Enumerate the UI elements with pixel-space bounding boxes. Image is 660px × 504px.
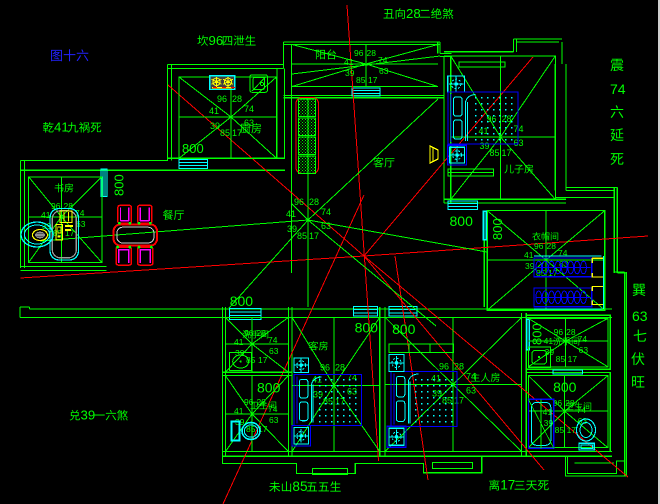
svg-text:39: 39 [525, 261, 535, 271]
svg-text:85: 85 [490, 148, 500, 158]
svg-text:85: 85 [556, 354, 566, 364]
svg-text:28: 28 [406, 6, 421, 21]
svg-text:96: 96 [354, 48, 364, 58]
svg-text:28: 28 [566, 327, 576, 337]
svg-text:96: 96 [534, 241, 544, 251]
svg-text:41: 41 [544, 336, 554, 346]
svg-text:800: 800 [392, 321, 416, 337]
svg-text:96: 96 [294, 197, 304, 207]
svg-text:800: 800 [257, 380, 281, 396]
svg-text:63: 63 [76, 219, 86, 229]
svg-text:63: 63 [269, 415, 279, 425]
svg-text:96: 96 [439, 362, 449, 372]
svg-text:800: 800 [450, 213, 474, 229]
svg-text:800: 800 [182, 141, 204, 156]
svg-text:85: 85 [246, 355, 256, 365]
svg-text:41: 41 [41, 210, 51, 220]
svg-text:85: 85 [220, 128, 230, 138]
svg-text:85: 85 [292, 479, 307, 494]
svg-text:41: 41 [54, 120, 69, 135]
svg-text:28: 28 [232, 94, 242, 104]
svg-text:39: 39 [544, 418, 554, 428]
svg-text:17: 17 [454, 396, 464, 406]
svg-text:74: 74 [610, 81, 626, 97]
svg-text:85: 85 [555, 425, 565, 435]
svg-text:39: 39 [287, 224, 297, 234]
svg-text:63: 63 [379, 66, 389, 76]
svg-text:17: 17 [258, 355, 268, 365]
svg-text:39: 39 [345, 68, 355, 78]
svg-text:63: 63 [579, 345, 589, 355]
svg-text:28: 28 [454, 362, 464, 372]
svg-text:17: 17 [567, 425, 577, 435]
svg-text:63: 63 [514, 138, 524, 148]
svg-text:800: 800 [112, 174, 127, 196]
svg-text:74: 74 [514, 124, 524, 134]
svg-text:39: 39 [81, 408, 96, 423]
svg-text:96: 96 [217, 94, 227, 104]
svg-text:96: 96 [320, 362, 330, 372]
svg-text:74: 74 [268, 335, 278, 345]
svg-text:28: 28 [547, 241, 557, 251]
svg-text:74: 74 [321, 207, 331, 217]
svg-text:28: 28 [367, 48, 377, 58]
svg-text:17: 17 [309, 231, 319, 241]
svg-text:41: 41 [524, 250, 534, 260]
svg-text:74: 74 [378, 55, 388, 65]
svg-text:17: 17 [568, 354, 578, 364]
svg-text:800: 800 [355, 320, 379, 336]
svg-text:28: 28 [309, 197, 319, 207]
svg-text:800: 800 [530, 323, 545, 345]
svg-text:63: 63 [466, 386, 476, 396]
svg-text:39: 39 [480, 141, 490, 151]
svg-text:17: 17 [500, 478, 515, 493]
svg-text:28: 28 [64, 201, 74, 211]
svg-text:17: 17 [368, 75, 378, 85]
svg-text:63: 63 [269, 346, 279, 356]
svg-text:85: 85 [356, 75, 366, 85]
svg-text:74: 74 [244, 104, 254, 114]
svg-text:39: 39 [210, 121, 220, 131]
svg-text:96: 96 [209, 33, 224, 48]
svg-text:63: 63 [632, 308, 648, 324]
svg-text:800: 800 [490, 218, 505, 240]
svg-text:41: 41 [234, 406, 244, 416]
svg-text:41: 41 [344, 57, 354, 67]
svg-text:63: 63 [321, 221, 331, 231]
svg-text:85: 85 [297, 231, 307, 241]
svg-text:96: 96 [554, 327, 564, 337]
svg-text:17: 17 [502, 148, 512, 158]
svg-text:41: 41 [234, 337, 244, 347]
svg-text:800: 800 [553, 379, 577, 395]
svg-text:800: 800 [230, 293, 254, 309]
svg-text:28: 28 [335, 362, 345, 372]
svg-text:41: 41 [209, 106, 219, 116]
svg-text:41: 41 [286, 209, 296, 219]
